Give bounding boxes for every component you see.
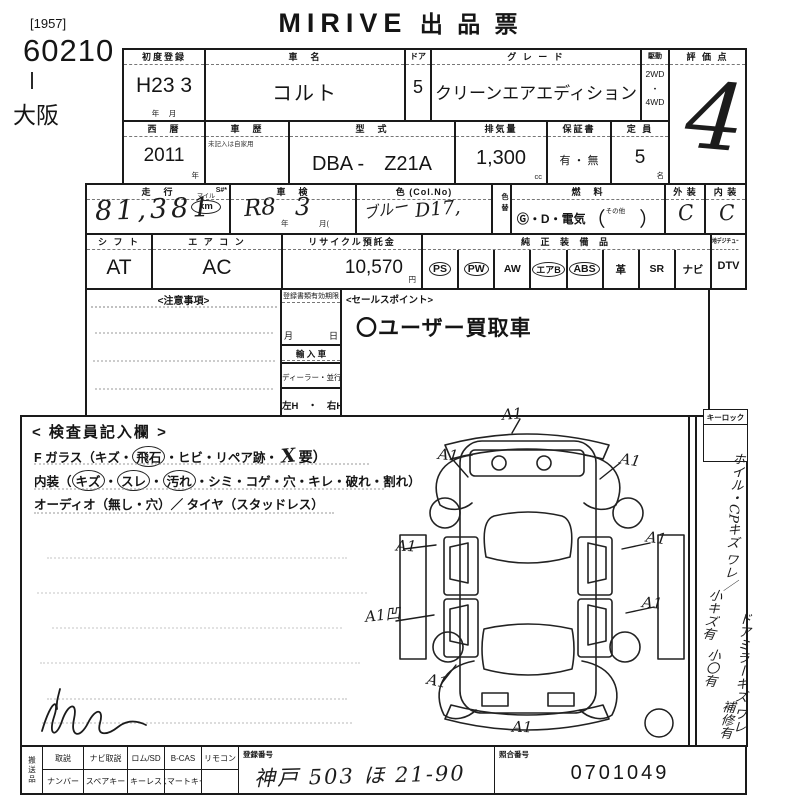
door-label: ドア <box>406 50 430 65</box>
aircon-cell: エ ア コ ン AC <box>151 233 283 290</box>
equipment-label: 純 正 装 備 品 <box>423 235 710 250</box>
door-value: 5 <box>406 77 430 98</box>
recycle-fee-unit: 円 <box>409 274 417 285</box>
damage-mark: A1 <box>641 593 663 613</box>
reference-label: 照合番号 <box>499 749 529 760</box>
import-header-label: 輸 入 車 <box>282 348 340 361</box>
equipment-cell: 純 正 装 備 品 PS PW AW エアB ABS 革 SR ナビ <box>421 233 712 290</box>
year-label: 西 暦 <box>124 122 204 137</box>
first-registration-cell: 初度登録 H23 3 年 月 <box>122 48 206 122</box>
damage-mark: A1 <box>645 528 668 549</box>
exterior-grade-handwritten: C <box>676 200 695 226</box>
lot-number: 60210 <box>23 33 114 69</box>
equip-pw: PW <box>459 250 495 288</box>
brand-logo: MIRIVE <box>278 8 407 38</box>
dtv-header: 地デジチューナー有 <box>712 235 738 250</box>
inspector-title: < 検査員記入欄 > <box>32 421 168 442</box>
car-wheels <box>430 498 643 662</box>
car-doors <box>444 537 612 657</box>
model-code-value: DBA - Z21A <box>290 147 454 176</box>
fuel-label: 燃 料 <box>512 185 664 200</box>
capacity-value: 5 <box>612 147 668 169</box>
damage-mark: A1 <box>619 449 642 470</box>
color-code-handwritten: D17, <box>414 196 461 222</box>
carry-items-label-cell: 搬送品 <box>22 747 43 793</box>
page-title: 出 品 票 <box>420 11 522 37</box>
auction-sheet: [1957] 60210 大阪 MIRIVE 出 品 票 初度登録 H23 3 … <box>0 0 800 800</box>
equip-abs: ABS <box>568 250 604 288</box>
capacity-cell: 定 員 5 名 <box>610 120 670 185</box>
grade-label: グ レ ー ド <box>432 50 640 65</box>
bottom-table: 搬送品 取説 ナビ取説 ロム/SD B-CAS リモコン ナンバー スペアキー … <box>20 745 747 795</box>
history-label: 車 歴 <box>206 122 288 137</box>
docs-expiry-label: 登録書類有効期限 <box>282 290 340 303</box>
door-cell: ドア 5 <box>404 48 432 122</box>
equip-sr: SR <box>640 250 676 288</box>
handle-value: 左H ・ 右H <box>282 398 340 412</box>
color-label: 色 (Col.No) <box>357 185 491 200</box>
recycle-fee-label: リサイクル預託金 <box>283 235 421 250</box>
docs-expiry-cell: 登録書類有効期限 月 日 <box>280 288 342 346</box>
item-bcas: B-CAS <box>165 747 202 770</box>
drive-cell: 駆動 2WD ・ 4WD <box>640 48 670 122</box>
import-type-cell: ディーラー・並行 <box>280 362 342 389</box>
registration-value-handwritten: 神戸 503 ほ 21-90 <box>254 757 466 793</box>
displacement-cell: 排気量 1,300 cc <box>454 120 548 185</box>
car-name-cell: 車 名 コルト <box>204 48 406 122</box>
shift-value: AT <box>87 256 151 280</box>
damage-mark: A1 <box>437 445 459 465</box>
shaken-year-unit: 年 <box>281 218 289 229</box>
car-damage-diagram <box>392 417 704 747</box>
keylock-label: キーロック <box>704 412 747 423</box>
reference-value: 0701049 <box>495 762 745 785</box>
dtv-value: DTV <box>712 260 745 272</box>
carry-items-label: 搬送品 <box>27 756 38 785</box>
history-note: 未記入は自家用 <box>208 138 254 148</box>
annotation-leader-strokes <box>396 419 654 683</box>
item-smart-key: スマートキー <box>165 770 202 793</box>
mileage-cell: 走 行 S#* 81,381 マイル km <box>85 183 231 235</box>
damage-mark: A1 <box>512 718 533 737</box>
equip-ps: PS <box>423 250 459 288</box>
equip-aw: AW <box>495 250 531 288</box>
warranty-cell: 保証書 有 ・ 無 <box>546 120 612 185</box>
first-registration-unit: 年 月 <box>124 108 204 119</box>
fuel-other: その他 <box>606 208 626 215</box>
item-keyless: キーレス <box>128 770 165 793</box>
sales-point-label: <セールスポイント> <box>346 292 433 306</box>
car-fenders <box>436 455 619 719</box>
color-change-label: 色替 <box>499 193 509 215</box>
capacity-unit: 名 <box>657 170 665 181</box>
audio-tire-line: オーディオ（無し・穴）／ タイヤ（スタッドレス） <box>34 494 324 513</box>
aircon-value: AC <box>153 256 281 280</box>
car-name-value: コルト <box>206 77 404 106</box>
equip-leather: 革 <box>604 250 640 288</box>
import-header-cell: 輸 入 車 <box>280 344 342 364</box>
damage-mark: A1 <box>396 536 417 555</box>
shaken-month-unit: 月( <box>319 218 329 229</box>
color-cell: 色 (Col.No) ブルー D17, <box>355 183 493 235</box>
fuel-paren-open: （ <box>586 209 606 231</box>
shaken-month-handwritten: 3 <box>295 193 310 221</box>
item-number-plate: ナンバー <box>43 770 84 793</box>
grade-cell: グ レ ー ド クリーンエアエディション <box>430 48 642 122</box>
exterior-grade-cell: 外 装 C <box>664 183 706 235</box>
interior-grade-handwritten: C <box>718 200 736 226</box>
car-name-label: 車 名 <box>206 50 404 65</box>
auction-site: 大阪 <box>13 96 59 130</box>
fuel-options: Ⓖ・D・電気 <box>517 212 586 226</box>
import-type-value: ディーラー・並行 <box>282 372 340 383</box>
docs-expiry-units: 月 日 <box>282 329 340 342</box>
car-side-sills <box>400 535 684 659</box>
first-registration-value: H23 3 <box>124 74 204 98</box>
warranty-label: 保証書 <box>548 122 610 137</box>
model-code-label: 型 式 <box>290 122 454 137</box>
fuel-cell: 燃 料 Ⓖ・D・電気（その他） <box>510 183 666 235</box>
interior-grade-label: 内 装 <box>706 185 745 200</box>
equipment-items: PS PW AW エアB ABS 革 SR ナビ <box>423 250 710 288</box>
damage-mark: A1 <box>501 404 523 423</box>
item-remote: リモコン <box>202 747 239 770</box>
recycle-fee-cell: リサイクル預託金 10,570 円 <box>281 233 423 290</box>
hand-circle-mark <box>645 709 673 737</box>
sidebar-note: 補修有 <box>714 699 737 740</box>
color-change-cell: 色替 <box>491 183 512 235</box>
handle-cell: 左H ・ 右H <box>280 387 342 417</box>
inspector-box: < 検査員記入欄 > F ガラス（キズ・飛石・ヒビ・リペア跡・X要） 内装（キズ… <box>20 415 690 747</box>
warranty-value: 有 ・ 無 <box>548 152 610 168</box>
mileage-unit-circled: km <box>191 200 221 214</box>
damage-mark: A1凹 <box>364 602 401 627</box>
first-registration-label: 初度登録 <box>124 50 204 65</box>
notices-label: <注意事項> <box>87 292 280 307</box>
notices-box: <注意事項> <box>85 288 282 417</box>
drive-dot: ・ <box>642 83 668 95</box>
year-value: 2011 <box>124 145 204 167</box>
keylock-label-box: キーロック <box>703 409 748 425</box>
fuel-value-row: Ⓖ・D・電気（その他） <box>512 203 664 232</box>
item-navi-manual: ナビ取説 <box>84 747 128 770</box>
drive-label: 駆動 <box>642 50 668 65</box>
shift-cell: シ フ ト AT <box>85 233 153 290</box>
car-body-outline <box>445 434 609 730</box>
history-cell: 車 歴 未記入は自家用 <box>204 120 290 185</box>
model-code-cell: 型 式 DBA - Z21A <box>288 120 456 185</box>
capacity-label: 定 員 <box>612 122 668 137</box>
displacement-unit: cc <box>535 172 543 181</box>
lot-bracket: [1957] <box>30 16 66 31</box>
sales-point-value: 〇ユーザー買取車 <box>356 312 532 342</box>
inspector-signature <box>30 685 170 743</box>
item-spare-key: スペアキー <box>84 770 128 793</box>
score-cell: 評 価 点 4 <box>668 48 747 185</box>
km-badge: マイル km <box>191 191 221 214</box>
registration-label: 登録番号 <box>243 749 273 760</box>
equip-airbag: エアB <box>531 250 567 288</box>
shift-label: シ フ ト <box>87 235 151 250</box>
handwritten-tick <box>31 72 33 89</box>
sales-point-box: <セールスポイント> 〇ユーザー買取車 <box>340 288 710 417</box>
displacement-label: 排気量 <box>456 122 546 137</box>
equip-navi: ナビ <box>676 250 710 288</box>
item-manual: 取説 <box>43 747 84 770</box>
damage-mark: A1 <box>425 670 449 692</box>
year-cell: 西 暦 2011 年 <box>122 120 206 185</box>
shaken-era-handwritten: R8 <box>243 194 277 222</box>
sheet-header: MIRIVE 出 品 票 <box>250 5 550 39</box>
mileage-unit-top: マイル <box>191 191 221 200</box>
score-value-handwritten: 4 <box>681 62 749 174</box>
aircon-label: エ ア コ ン <box>153 235 281 250</box>
fuel-paren-close: ） <box>639 209 659 231</box>
grade-value: クリーンエアエディション <box>432 79 640 104</box>
item-blank <box>202 770 239 793</box>
year-unit: 年 <box>192 170 200 181</box>
dtv-cell: 地デジチューナー有 DTV <box>710 233 747 290</box>
interior-grade-cell: 内 装 C <box>704 183 747 235</box>
exterior-grade-label: 外 装 <box>666 185 704 200</box>
shaken-cell: 車 検 R8 年 3 月( <box>229 183 357 235</box>
recycle-fee-value: 10,570 <box>345 257 403 279</box>
displacement-value: 1,300 <box>456 147 546 170</box>
item-rom-sd: ロム/SD <box>128 747 165 770</box>
drive-option-4wd: 4WD <box>642 97 668 107</box>
drive-option-2wd: 2WD <box>642 69 668 79</box>
